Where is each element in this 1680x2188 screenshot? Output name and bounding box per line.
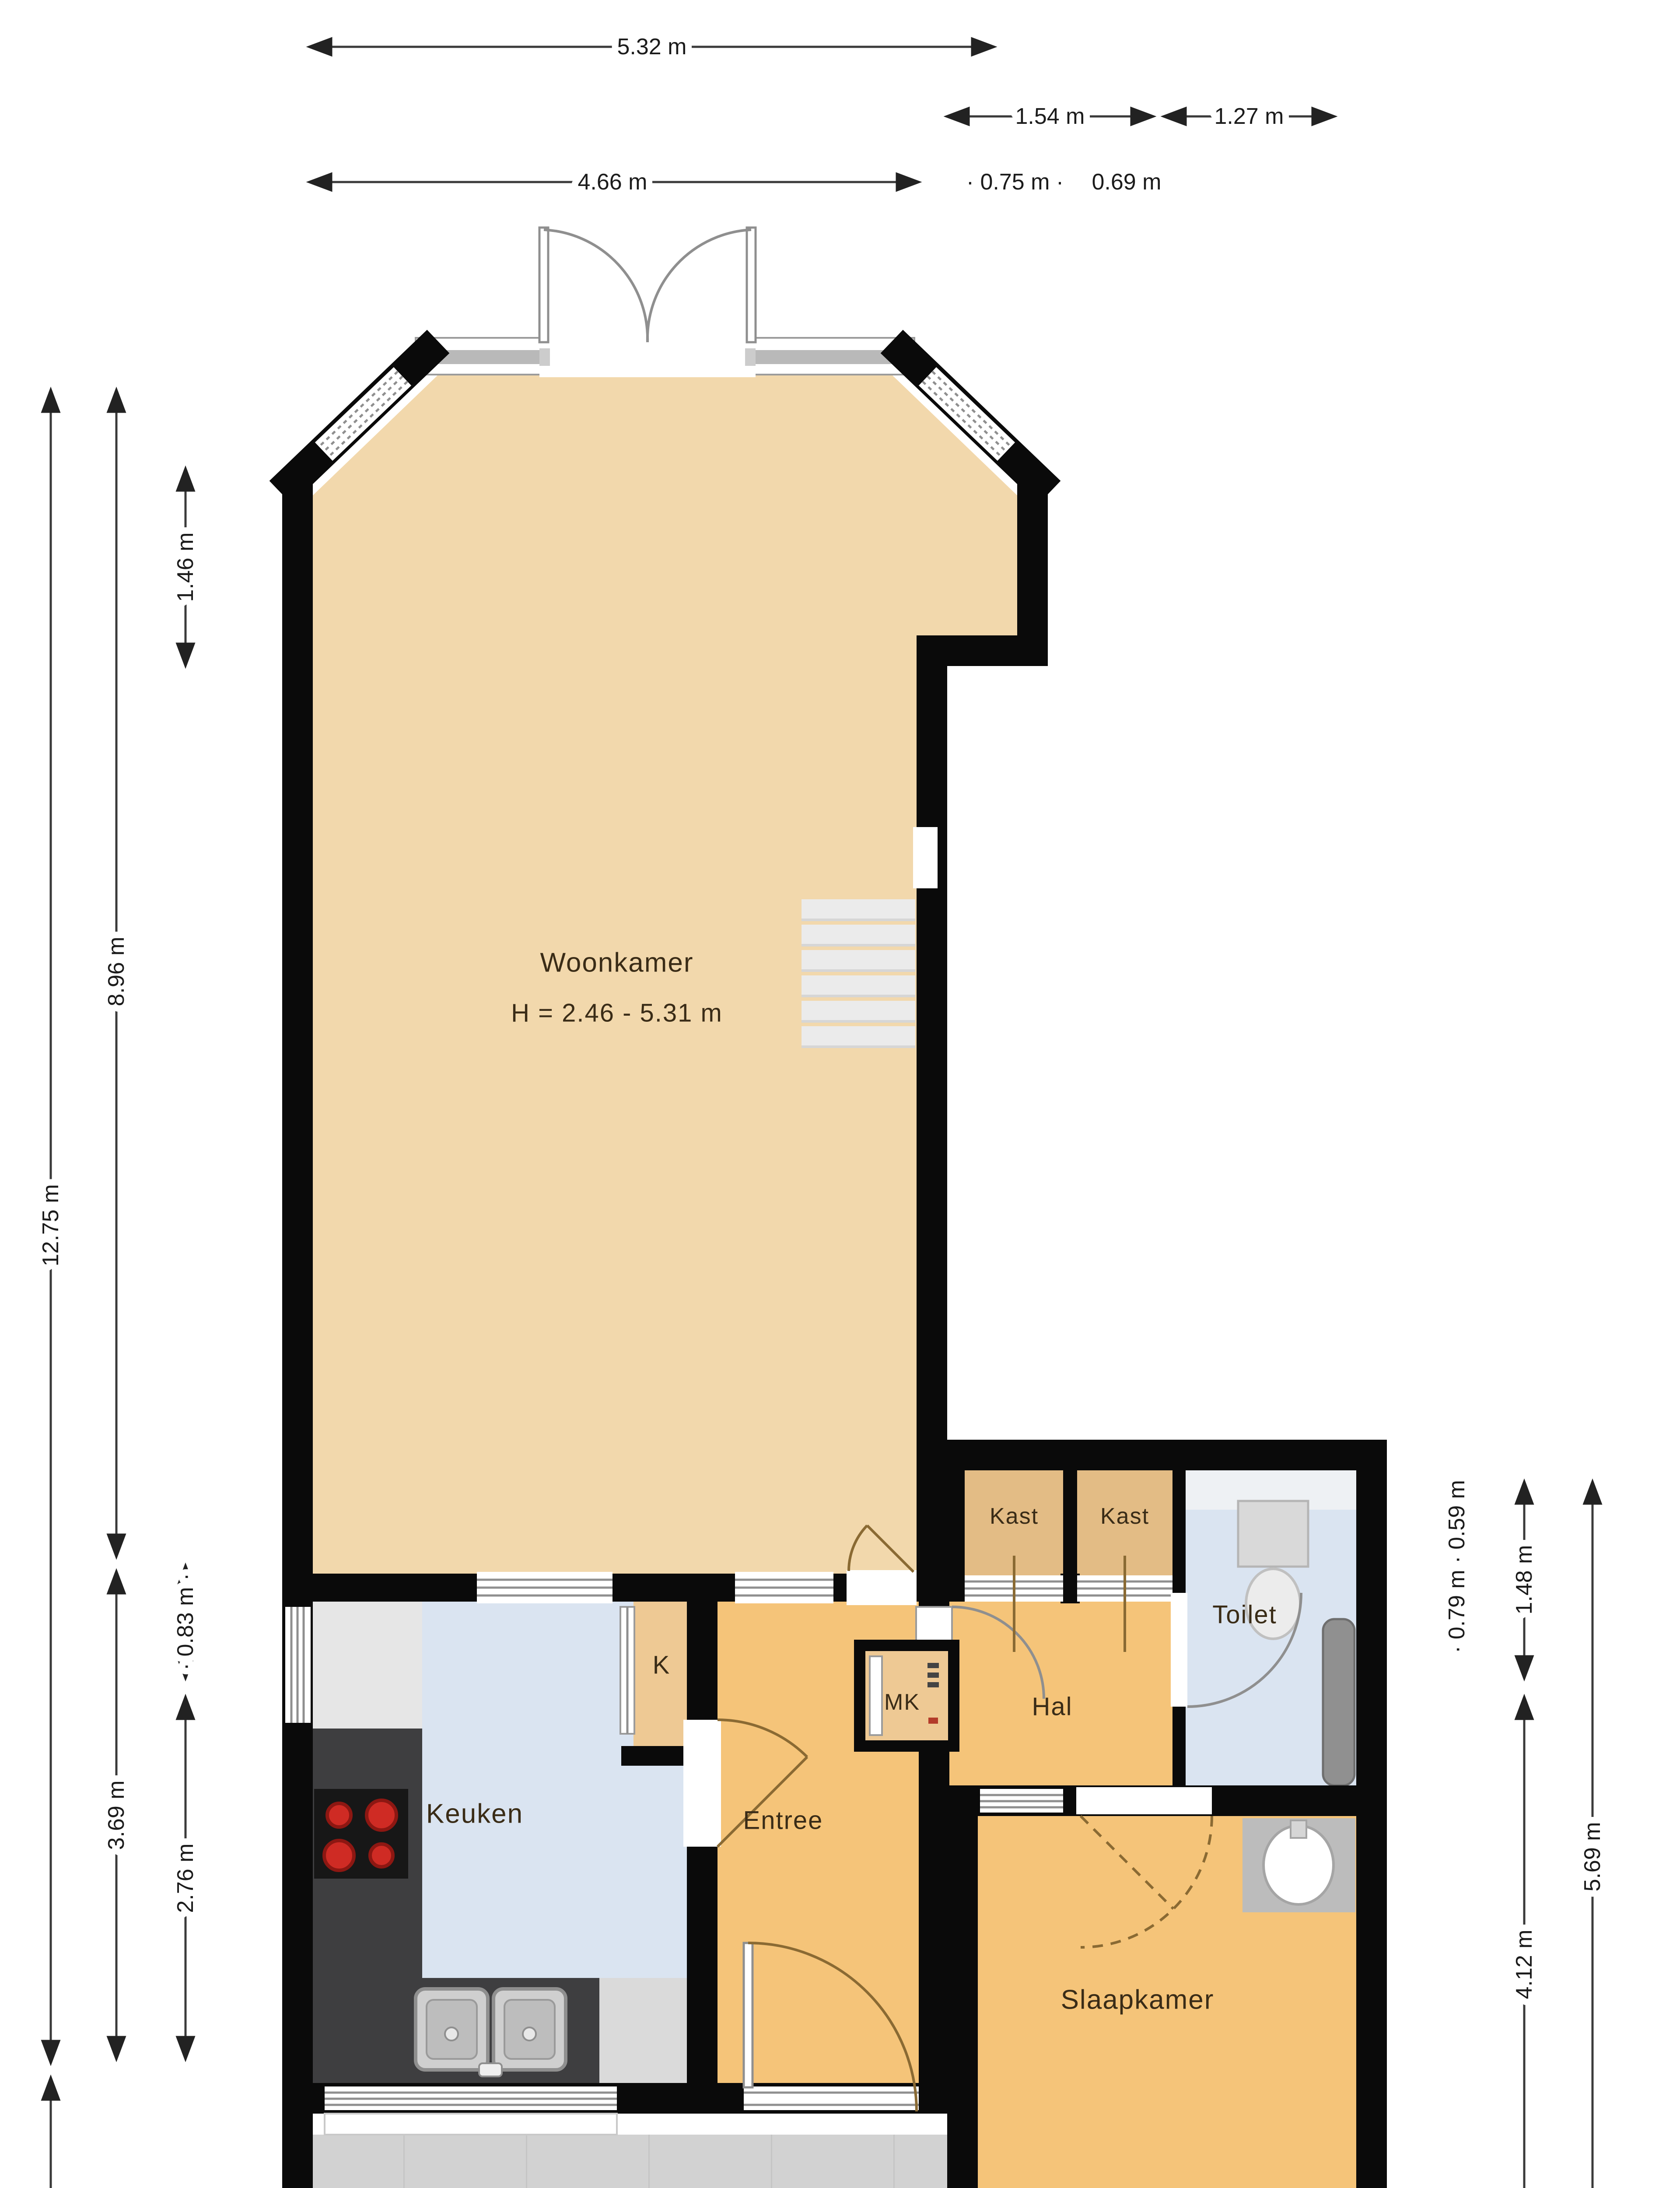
label-slaapkamer: Slaapkamer [1061,1985,1214,2015]
fridge-unit [313,1602,422,1729]
door-opening-entree-south [744,2086,919,2110]
door-leaf-entree [744,1943,752,2087]
door-opening-slaapkamer [1076,1787,1212,1814]
dim-label-1.48: 1.48 m [1512,1545,1537,1615]
dim-label-1.27: 1.27 m [1214,104,1284,129]
dim-label-4.66: 4.66 m [578,169,647,195]
dim-label-0.69: 0.69 m [1092,169,1162,195]
label-toilet: Toilet [1212,1601,1277,1629]
wall-notch [913,827,938,888]
wall-keuken-entree [687,1602,717,2114]
wall-right-lower [917,635,947,1602]
label-woonkamer: Woonkamer [540,948,693,978]
label-woonkamer-height: H = 2.46 - 5.31 m [511,999,723,1027]
dim-label-0.75: · 0.75 m · [966,169,1064,195]
dim-label-5.69: 5.69 m [1580,1822,1605,1892]
label-keuken: Keuken [426,1799,523,1829]
door-opening-woonkamer [847,1570,917,1605]
dim-label-0.79-0.59: · 0.79 m · 0.59 m [1444,1480,1470,1653]
counter-side-strip [599,1978,687,2083]
dimensions-right: · 0.79 m · 0.59 m 1.48 m 4.12 m 5.69 m 1… [1444,1480,1605,2188]
mk-door-strip [870,1656,882,1735]
dim-label-5.32: 5.32 m [617,34,687,60]
wall-left-exterior [282,475,313,2188]
dim-label-2.76: 2.76 m [173,1844,198,1913]
wall-kast-separator [1063,1470,1077,1575]
basin-faucet-icon [1291,1820,1306,1838]
label-hal: Hal [1032,1693,1072,1721]
window-sill-keuken [325,2114,617,2135]
burner-icon [367,1800,396,1830]
wall-block-top [947,1440,1387,1470]
dim-label-0.83: · 0.83 m · [173,1573,198,1671]
door-opening-keuken [683,1720,721,1847]
label-mk: MK [884,1690,920,1715]
dim-label-3.69: 3.69 m [104,1781,129,1850]
label-k: K [653,1651,671,1680]
label-kast-links: Kast [990,1504,1039,1529]
french-door-arc-left [544,230,647,342]
label-entree: Entree [743,1806,823,1835]
dim-label-4.12: 4.12 m [1512,1930,1537,1999]
wall-kast-center-post [1060,1574,1080,1603]
wall-k-bottom [621,1746,687,1766]
french-door-leaf-right [747,228,756,342]
dimensions-left: 12.75 m 8.96 m 1.46 m · 0.83 m · 3.69 m … [38,390,198,2188]
drain-icon [445,2027,458,2041]
french-door-arc-right [647,230,751,342]
floor-plan-canvas: Woonkamer H = 2.46 - 5.31 m Keuken Entre… [0,0,1680,2188]
dim-label-12.75: 12.75 m [38,1184,63,1266]
floors [282,375,1356,2188]
wall-slaapkamer-left [947,1816,978,2188]
dim-label-1.54: 1.54 m [1015,104,1085,129]
wall-kast-left-post [947,1470,965,1602]
toilet-tank-icon [1238,1501,1308,1567]
drain-icon [523,2027,536,2041]
dimensions-top: 5.32 m 1.54 m 1.27 m 4.66 m · 0.75 m · 0… [309,34,1334,195]
french-door-leaf-left [539,228,548,342]
door-opening-toilet [1171,1593,1187,1707]
label-kast-rechts: Kast [1100,1504,1149,1529]
faucet-icon [479,2063,502,2076]
burner-icon [324,1841,354,1870]
burner-icon [370,1844,393,1867]
dim-label-8.96: 8.96 m [104,937,129,1006]
burner-icon [327,1803,351,1827]
wall-right-upper [1017,475,1048,637]
dim-label-1.46: 1.46 m [173,533,198,602]
radiator [1323,1619,1354,1785]
